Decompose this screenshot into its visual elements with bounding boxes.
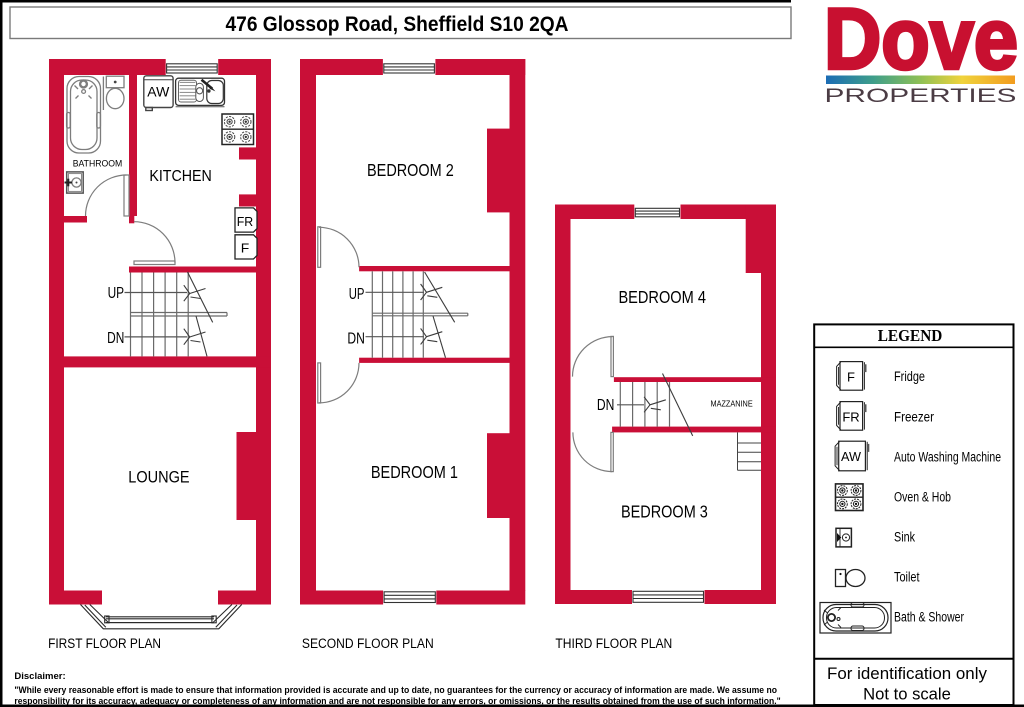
- svg-text:SECOND FLOOR PLAN: SECOND FLOOR PLAN: [302, 636, 434, 651]
- svg-text:FR: FR: [237, 214, 254, 229]
- svg-text:Oven & Hob: Oven & Hob: [894, 490, 951, 505]
- svg-text:476 Glossop Road, Sheffield S1: 476 Glossop Road, Sheffield S10 2QA: [226, 13, 569, 36]
- svg-text:Disclaimer:: Disclaimer:: [14, 671, 65, 682]
- svg-text:DN: DN: [347, 330, 365, 347]
- svg-text:BEDROOM 1: BEDROOM 1: [371, 462, 458, 482]
- svg-text:Auto Washing Machine: Auto Washing Machine: [894, 450, 1001, 465]
- svg-text:FR: FR: [842, 410, 859, 425]
- svg-text:DN: DN: [107, 330, 124, 347]
- svg-text:AW: AW: [841, 449, 862, 464]
- svg-text:responsibility for its accurac: responsibility for its accuracy, adequac…: [14, 696, 780, 707]
- svg-text:Toilet: Toilet: [894, 570, 920, 585]
- svg-text:Not to scale: Not to scale: [863, 686, 951, 704]
- svg-text:Dove: Dove: [824, 0, 1018, 87]
- svg-text:FIRST FLOOR PLAN: FIRST FLOOR PLAN: [48, 636, 161, 651]
- svg-text:MAZZANINE: MAZZANINE: [711, 399, 753, 408]
- svg-text:Sink: Sink: [894, 530, 915, 545]
- svg-text:PROPERTIES: PROPERTIES: [825, 86, 1017, 107]
- svg-text:F: F: [847, 370, 855, 385]
- svg-text:DN: DN: [597, 397, 615, 414]
- svg-text:F: F: [241, 241, 250, 256]
- svg-text:THIRD FLOOR PLAN: THIRD FLOOR PLAN: [555, 636, 672, 651]
- svg-text:Freezer: Freezer: [894, 410, 934, 425]
- svg-text:Bath & Shower: Bath & Shower: [894, 610, 964, 625]
- svg-text:For identification only: For identification only: [827, 665, 988, 683]
- svg-text:BATHROOM: BATHROOM: [73, 159, 123, 170]
- svg-text:LEGEND: LEGEND: [878, 326, 943, 345]
- svg-text:BEDROOM 2: BEDROOM 2: [367, 160, 454, 180]
- svg-text:Fridge: Fridge: [894, 369, 925, 384]
- svg-text:LOUNGE: LOUNGE: [128, 468, 189, 486]
- svg-text:KITCHEN: KITCHEN: [149, 168, 212, 185]
- svg-text:BEDROOM 3: BEDROOM 3: [621, 502, 708, 522]
- svg-text:UP: UP: [108, 285, 125, 302]
- svg-text:UP: UP: [349, 286, 365, 303]
- svg-text:BEDROOM 4: BEDROOM 4: [618, 287, 706, 307]
- svg-text:AW: AW: [147, 84, 169, 99]
- svg-text:"While every reasonable effort: "While every reasonable effort is made t…: [14, 685, 777, 696]
